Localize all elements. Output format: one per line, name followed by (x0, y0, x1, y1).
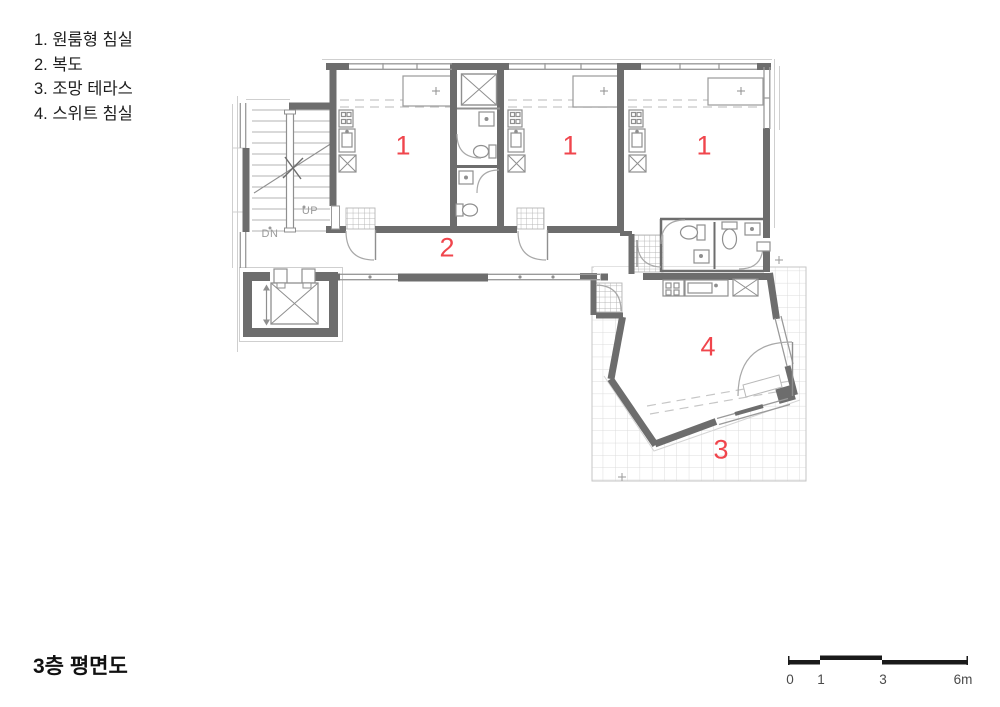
legend-item-4: 4. 스위트 침실 (34, 102, 133, 127)
page-title: 3층 평면도 (33, 650, 128, 680)
room-number-1c: 1 (696, 131, 711, 162)
stair-up-label: UP (302, 205, 318, 217)
legend: 1. 원룸형 침실 2. 복도 3. 조망 테라스 4. 스위트 침실 (34, 28, 133, 126)
elevator (263, 269, 318, 326)
scale-label-3: 3 (879, 672, 887, 687)
room-number-1a: 1 (395, 131, 410, 162)
scale-label-0: 0 (786, 672, 794, 687)
suite-kitchenette (663, 279, 758, 296)
room-number-2: 2 (439, 233, 454, 264)
scale-label-6m: 6m (954, 672, 973, 687)
scale-label-1: 1 (817, 672, 825, 687)
bathroom-pod (456, 109, 500, 217)
scale-bar (788, 656, 968, 666)
floor-plan-drawing (0, 0, 1000, 707)
legend-item-3: 3. 조망 테라스 (34, 77, 133, 102)
room-number-4: 4 (700, 332, 715, 363)
duct-shaft (462, 74, 497, 105)
room-number-3: 3 (713, 435, 728, 466)
room-number-1b: 1 (562, 131, 577, 162)
floor-plan-page: 1. 원룸형 침실 2. 복도 3. 조망 테라스 4. 스위트 침실 1 1 … (0, 0, 1000, 707)
legend-item-2: 2. 복도 (34, 53, 133, 78)
legend-item-1: 1. 원룸형 침실 (34, 28, 133, 53)
staircase (252, 110, 332, 232)
suite-bathroom-fixtures (661, 220, 771, 269)
kitchenettes (339, 110, 646, 172)
stair-down-label: DN (262, 228, 279, 240)
entry-tile-hatch (346, 208, 663, 312)
